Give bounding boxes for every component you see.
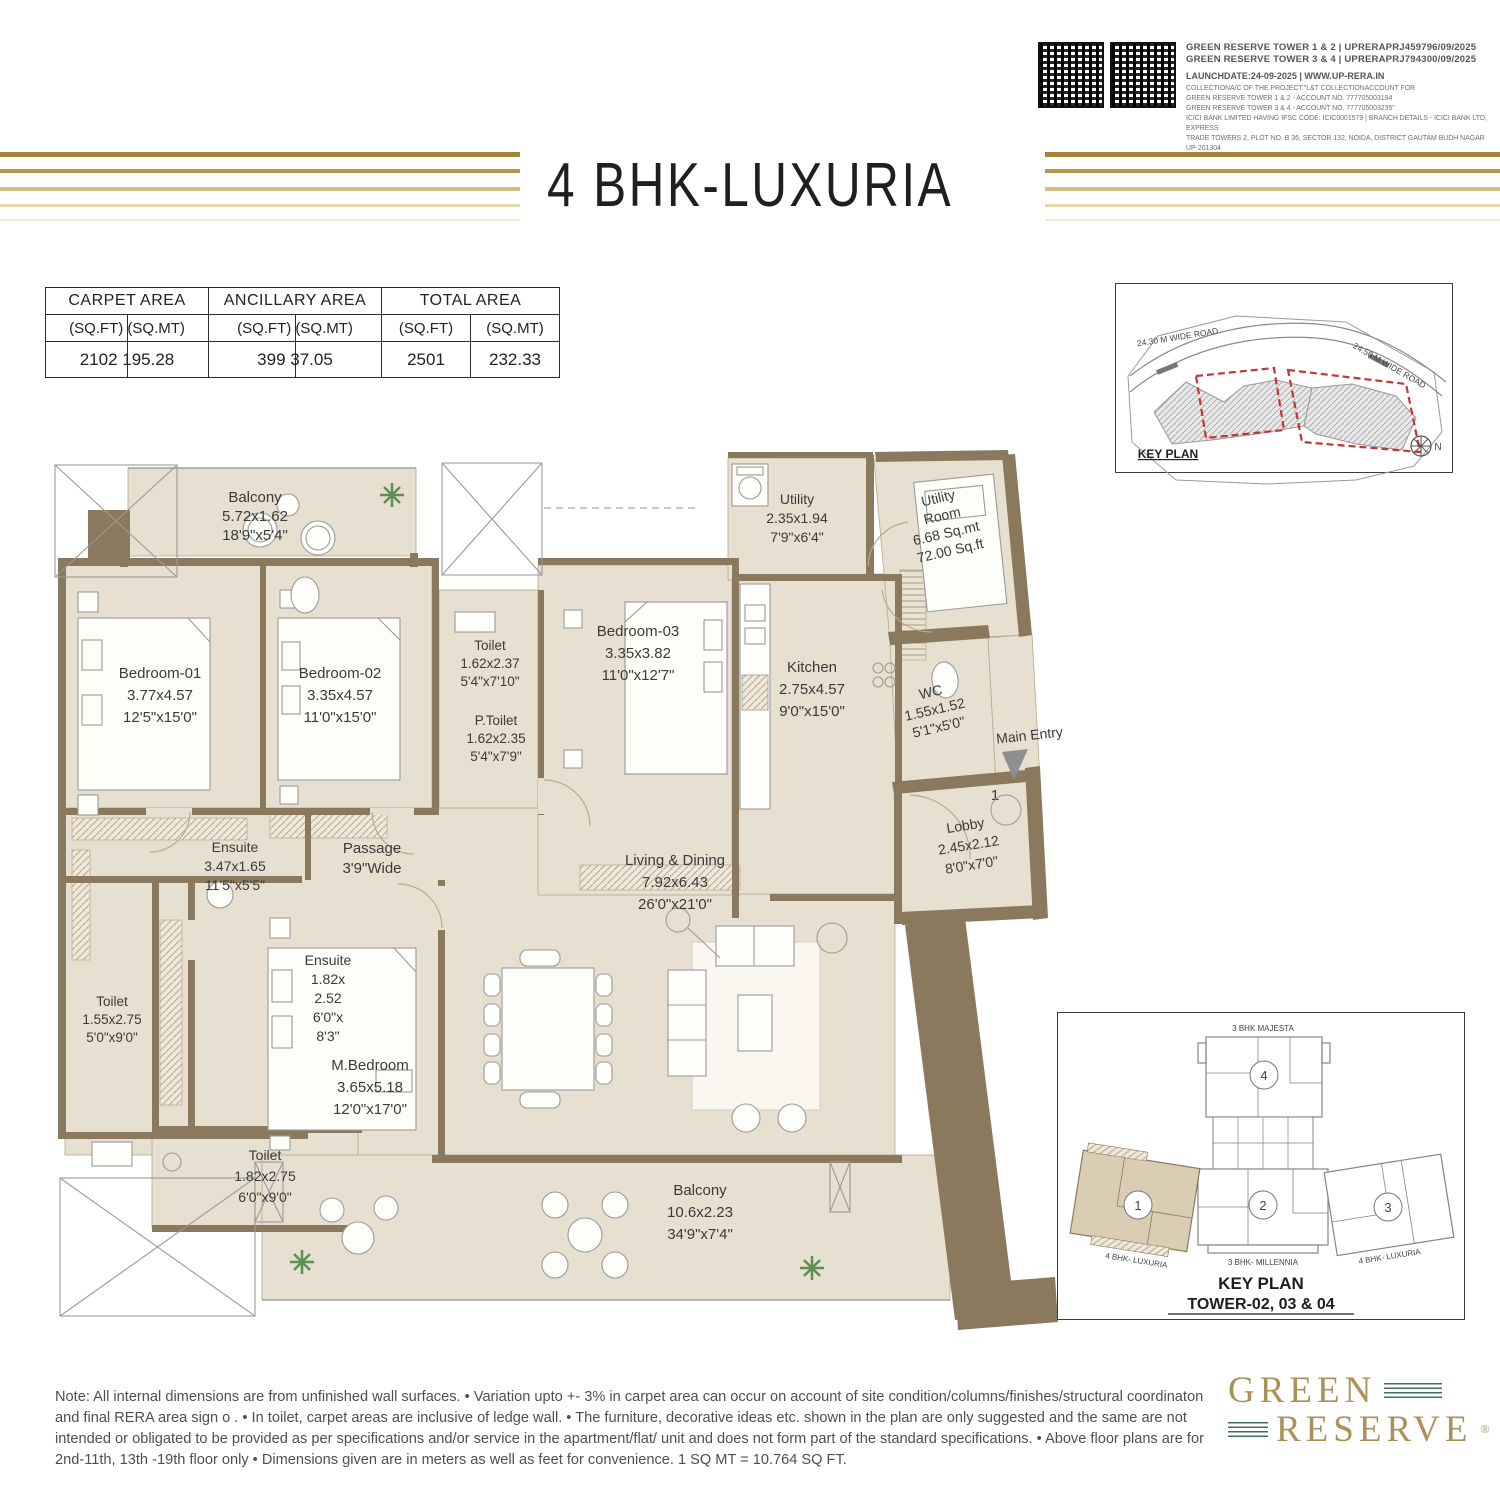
svg-text:3.35x3.82: 3.35x3.82 bbox=[605, 645, 671, 662]
total-area-sqmt-value: 232.33 bbox=[471, 342, 560, 378]
total-area-sqft-value: 2501 bbox=[382, 342, 471, 378]
svg-text:12'5"x15'0": 12'5"x15'0" bbox=[123, 709, 197, 726]
rera-header: GREEN RESERVE TOWER 1 & 2 | UPRERAPRJ459… bbox=[1038, 42, 1491, 154]
area-subheader-carpet: (SQ.FT) (SQ.MT) bbox=[46, 315, 209, 342]
svg-text:1.62x2.37: 1.62x2.37 bbox=[460, 656, 519, 671]
svg-text:1.55x2.75: 1.55x2.75 bbox=[82, 1012, 141, 1027]
svg-text:5'0"x9'0": 5'0"x9'0" bbox=[86, 1030, 138, 1045]
label-balcony-top: Balcony 5.72x1.62 18'9"x5'4" bbox=[222, 489, 288, 544]
rera-text-block: GREEN RESERVE TOWER 1 & 2 | UPRERAPRJ459… bbox=[1186, 42, 1491, 154]
svg-text:5.72x1.62: 5.72x1.62 bbox=[222, 508, 288, 525]
svg-text:7.92x6.43: 7.92x6.43 bbox=[642, 874, 708, 891]
svg-text:2.52: 2.52 bbox=[314, 990, 341, 1006]
green-reserve-logo: GREEN RESERVE ® bbox=[1228, 1372, 1490, 1448]
logo-word-reserve: RESERVE bbox=[1276, 1411, 1473, 1448]
svg-text:Living & Dining: Living & Dining bbox=[625, 852, 725, 869]
dining-table-set bbox=[484, 950, 612, 1108]
label-p-toilet: P.Toilet 1.62x2.35 5'4"x7'9" bbox=[466, 713, 525, 764]
area-table-header-carpet: CARPET AREA bbox=[46, 288, 209, 315]
svg-text:Ensuite: Ensuite bbox=[212, 839, 259, 855]
svg-text:P.Toilet: P.Toilet bbox=[475, 713, 518, 728]
label-bedroom3: Bedroom-03 3.35x3.82 11'0"x12'7" bbox=[597, 623, 680, 684]
washing-machine-icon bbox=[732, 464, 768, 506]
svg-text:Toilet: Toilet bbox=[96, 994, 128, 1009]
svg-text:7'9"x6'4": 7'9"x6'4" bbox=[770, 529, 823, 545]
svg-text:N: N bbox=[1434, 442, 1441, 453]
svg-text:5'4"x7'9": 5'4"x7'9" bbox=[470, 749, 522, 764]
disclaimer-note: Note: All internal dimensions are from u… bbox=[55, 1387, 1215, 1472]
svg-text:2.75x4.57: 2.75x4.57 bbox=[779, 681, 845, 698]
carpet-area-value: 2102 195.28 bbox=[46, 342, 209, 378]
area-table-header-total: TOTAL AREA bbox=[382, 288, 560, 315]
svg-text:1.82x: 1.82x bbox=[311, 971, 345, 987]
tower-label-majesta: 3 BHK MAJESTA bbox=[1232, 1024, 1294, 1033]
qr-code-1 bbox=[1038, 42, 1104, 108]
svg-text:Balcony: Balcony bbox=[228, 489, 282, 506]
svg-text:Balcony: Balcony bbox=[673, 1182, 727, 1199]
svg-text:1: 1 bbox=[991, 787, 999, 804]
road-marking-1 bbox=[1156, 362, 1178, 375]
area-subheader-total-sqft: (SQ.FT) bbox=[382, 315, 471, 342]
svg-text:6'0"x: 6'0"x bbox=[313, 1009, 343, 1025]
svg-text:Bedroom-01: Bedroom-01 bbox=[119, 665, 202, 682]
svg-text:Kitchen: Kitchen bbox=[787, 659, 837, 676]
svg-text:3.47x1.65: 3.47x1.65 bbox=[204, 858, 266, 874]
svg-text:11'0"x15'0": 11'0"x15'0" bbox=[304, 709, 377, 726]
svg-text:Bedroom-02: Bedroom-02 bbox=[299, 665, 382, 682]
label-bedroom1: Bedroom-01 3.77x4.57 12'5"x15'0" bbox=[119, 665, 202, 726]
floor-plan-page: GREEN RESERVE TOWER 1 & 2 | UPRERAPRJ459… bbox=[0, 0, 1500, 1500]
svg-text:10.6x2.23: 10.6x2.23 bbox=[667, 1204, 733, 1221]
label-m-bedroom: M.Bedroom 3.65x5.18 12'0"x17'0" bbox=[331, 1057, 409, 1118]
logo-word-green: GREEN bbox=[1228, 1372, 1376, 1409]
tower-key-plan-drawing: 3 BHK MAJESTA bbox=[1058, 1013, 1464, 1319]
svg-text:3.77x4.57: 3.77x4.57 bbox=[127, 687, 193, 704]
tower-key-plan: 3 BHK MAJESTA bbox=[1057, 1012, 1465, 1320]
svg-text:1: 1 bbox=[1134, 1198, 1141, 1213]
logo-lines-icon bbox=[1384, 1383, 1442, 1398]
svg-text:11'5"x5'5": 11'5"x5'5" bbox=[205, 877, 265, 893]
svg-text:8'3": 8'3" bbox=[316, 1028, 339, 1044]
svg-text:34'9"x7'4": 34'9"x7'4" bbox=[667, 1226, 733, 1243]
area-table-header-ancillary: ANCILLARY AREA bbox=[209, 288, 382, 315]
svg-text:Toilet: Toilet bbox=[474, 638, 506, 653]
svg-text:4: 4 bbox=[1260, 1068, 1267, 1083]
tower2-label: 3 BHK- MILLENNIA bbox=[1228, 1258, 1299, 1267]
svg-text:Ensuite: Ensuite bbox=[305, 952, 352, 968]
svg-text:Toilet: Toilet bbox=[249, 1147, 282, 1163]
ancillary-area-value: 399 37.05 bbox=[209, 342, 382, 378]
area-subheader-ancillary: (SQ.FT) (SQ.MT) bbox=[209, 315, 382, 342]
svg-text:3.35x4.57: 3.35x4.57 bbox=[307, 687, 373, 704]
building-mass-right bbox=[1304, 384, 1416, 450]
tower-core bbox=[1213, 1117, 1313, 1169]
rera-launch: LAUNCHDATE:24-09-2025 | WWW.UP-RERA.IN bbox=[1186, 71, 1491, 81]
sofa-set bbox=[666, 908, 847, 1132]
svg-text:3.65x5.18: 3.65x5.18 bbox=[337, 1079, 403, 1096]
rera-tower12: GREEN RESERVE TOWER 1 & 2 | UPRERAPRJ459… bbox=[1186, 42, 1491, 54]
site-key-plan: 24.30 M WIDE ROAD 24.50 M WIDE ROAD KEY … bbox=[1115, 283, 1453, 473]
svg-text:1.62x2.35: 1.62x2.35 bbox=[466, 731, 525, 746]
svg-text:Bedroom-03: Bedroom-03 bbox=[597, 623, 680, 640]
shaft-top-mid bbox=[442, 463, 542, 575]
svg-text:2: 2 bbox=[1259, 1198, 1266, 1213]
site-key-plan-drawing: 24.30 M WIDE ROAD 24.50 M WIDE ROAD KEY … bbox=[1116, 284, 1452, 472]
rera-tower34: GREEN RESERVE TOWER 3 & 4 | UPRERAPRJ794… bbox=[1186, 54, 1491, 66]
svg-text:6'0"x9'0": 6'0"x9'0" bbox=[238, 1189, 291, 1205]
svg-text:3'9"Wide: 3'9"Wide bbox=[342, 860, 401, 877]
area-subheader-total-sqmt: (SQ.MT) bbox=[471, 315, 560, 342]
label-balcony-bottom: Balcony 10.6x2.23 34'9"x7'4" bbox=[667, 1182, 733, 1243]
qr-code-2 bbox=[1110, 42, 1176, 108]
logo-lines-icon-2 bbox=[1228, 1422, 1268, 1437]
label-bedroom2: Bedroom-02 3.35x4.57 11'0"x15'0" bbox=[299, 665, 382, 726]
floor-plan-drawing: Balcony 5.72x1.62 18'9"x5'4" Bedroom-01 … bbox=[40, 450, 1070, 1350]
area-table: CARPET AREA ANCILLARY AREA TOTAL AREA (S… bbox=[45, 287, 560, 378]
svg-text:Utility: Utility bbox=[780, 491, 814, 507]
svg-text:9'0"x15'0": 9'0"x15'0" bbox=[779, 703, 845, 720]
svg-text:18'9"x5'4": 18'9"x5'4" bbox=[222, 527, 288, 544]
tower-key-plan-subtitle: TOWER-02, 03 & 04 bbox=[1187, 1296, 1334, 1313]
svg-text:26'0"x21'0": 26'0"x21'0" bbox=[638, 896, 712, 913]
svg-text:2.35x1.94: 2.35x1.94 bbox=[766, 510, 828, 526]
rera-fine-print: COLLECTIONA/C OF THE PROJECT:"L&T COLLEC… bbox=[1186, 84, 1491, 154]
svg-text:3: 3 bbox=[1384, 1200, 1391, 1215]
main-floor-plan: Balcony 5.72x1.62 18'9"x5'4" Bedroom-01 … bbox=[40, 450, 1070, 1350]
page-title: 4 BHK-LUXURIA bbox=[150, 150, 1350, 221]
svg-text:M.Bedroom: M.Bedroom bbox=[331, 1057, 409, 1074]
svg-text:Passage: Passage bbox=[343, 840, 401, 857]
compass-icon: N bbox=[1411, 436, 1442, 456]
tower-key-plan-title: KEY PLAN bbox=[1218, 1274, 1304, 1293]
site-key-plan-label: KEY PLAN bbox=[1138, 447, 1198, 461]
road-label-left: 24.30 M WIDE ROAD bbox=[1136, 326, 1219, 349]
svg-text:5'4"x7'10": 5'4"x7'10" bbox=[460, 674, 519, 689]
label-kitchen: Kitchen 2.75x4.57 9'0"x15'0" bbox=[779, 659, 845, 720]
svg-text:11'0"x12'7": 11'0"x12'7" bbox=[602, 667, 675, 684]
label-ensuite1: Ensuite 3.47x1.65 11'5"x5'5" bbox=[204, 839, 266, 893]
svg-text:12'0"x17'0": 12'0"x17'0" bbox=[333, 1101, 407, 1118]
logo-registered-mark: ® bbox=[1481, 1422, 1490, 1437]
svg-text:1.82x2.75: 1.82x2.75 bbox=[234, 1168, 296, 1184]
